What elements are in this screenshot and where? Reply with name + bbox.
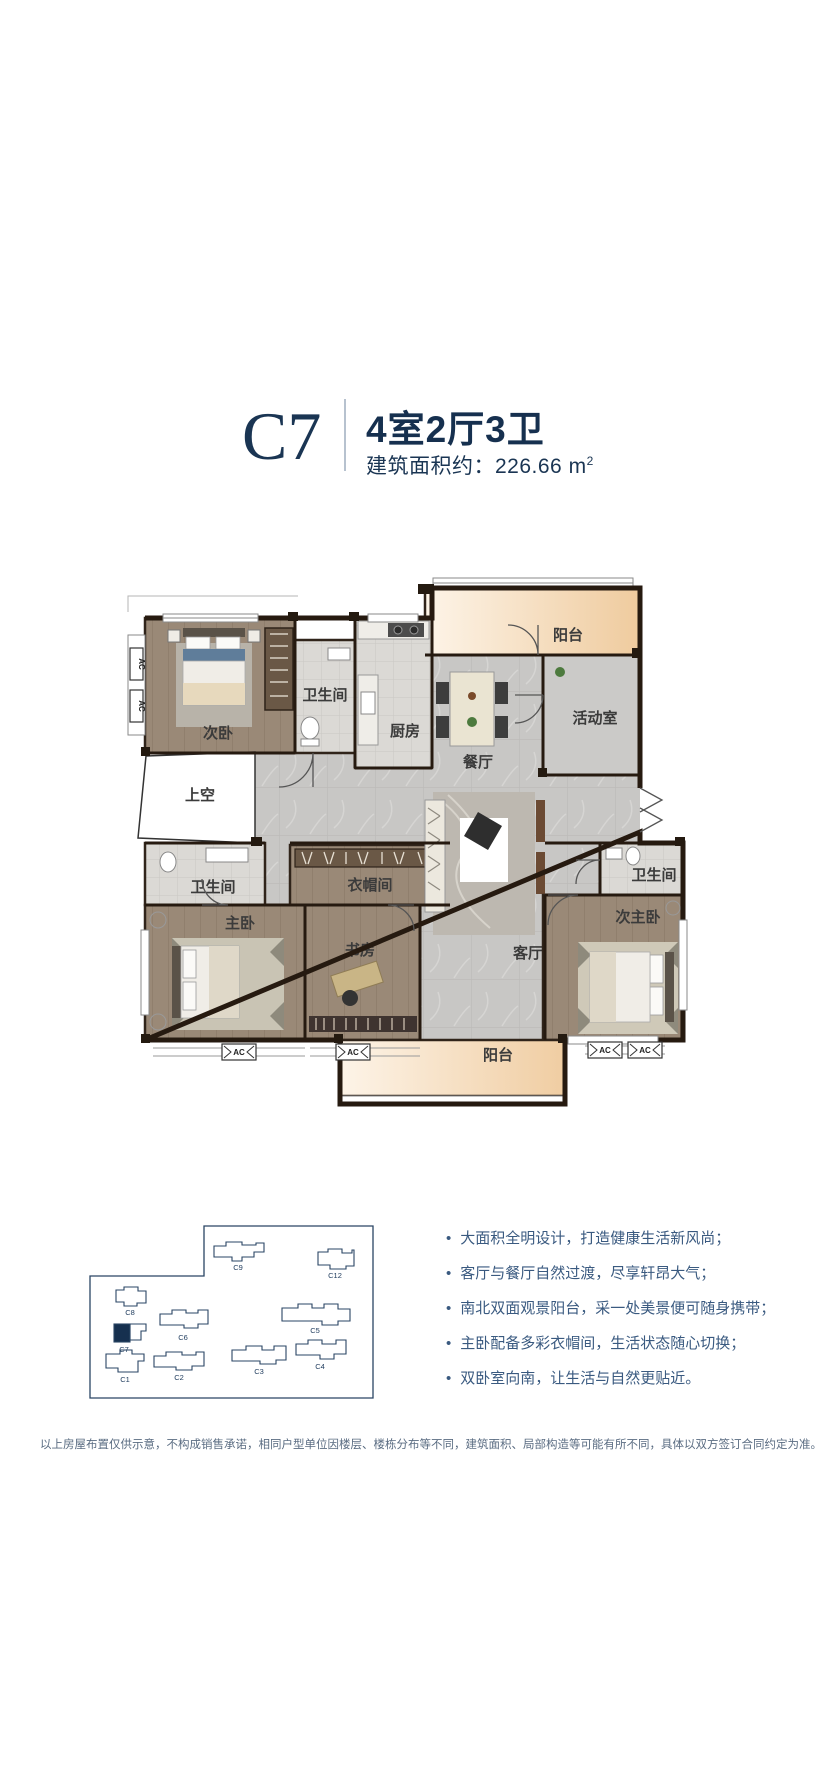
- building-label-C6: C6: [178, 1333, 188, 1342]
- room-label-void: 上空: [185, 786, 215, 804]
- bullet-icon: •: [446, 1333, 451, 1354]
- ac-box-4: AC: [639, 1046, 651, 1055]
- room-label-second-bedroom: 次卧: [203, 724, 233, 742]
- ac-box-1: AC: [233, 1048, 245, 1057]
- room-second-bedroom: 次卧: [145, 618, 295, 753]
- feature-item: •主卧配备多彩衣帽间，生活状态随心切换；: [446, 1333, 786, 1354]
- floorplan: 阳台 活动室 次卧: [88, 500, 708, 1110]
- room-bathroom-north: 卫生间: [295, 640, 355, 753]
- building-label-C2: C2: [174, 1373, 184, 1382]
- room-label-balcony-north: 阳台: [553, 626, 583, 644]
- siteplan-labels: C9 C12 C8 C6 C5 C7 C1 C2 C3 C4: [119, 1263, 342, 1384]
- feature-list: •大面积全明设计，打造健康生活新风尚； •客厅与餐厅自然过渡，尽享轩昂大气； •…: [446, 1228, 786, 1403]
- header-divider: [344, 399, 346, 471]
- building-C3: [232, 1346, 286, 1364]
- area-label: 建筑面积约：: [366, 455, 495, 478]
- layout-title: 4室2厅3卫: [366, 399, 545, 453]
- building-label-C8: C8: [125, 1308, 135, 1317]
- building-label-C1: C1: [120, 1375, 130, 1384]
- feature-item: •大面积全明设计，打造健康生活新风尚；: [446, 1228, 786, 1249]
- siteplan-buildings: [106, 1242, 354, 1372]
- feature-text: 客厅与餐厅自然过渡，尽享轩昂大气；: [460, 1263, 715, 1284]
- room-label-cloakroom: 衣帽间: [347, 876, 392, 894]
- building-C4: [296, 1340, 346, 1359]
- ac-box-3: AC: [599, 1046, 611, 1055]
- room-label-living: 客厅: [512, 944, 543, 962]
- building-C7-highlight: [114, 1324, 130, 1342]
- room-label-dining: 餐厅: [463, 753, 493, 771]
- building-C8: [116, 1287, 146, 1306]
- feature-text: 南北双面观景阳台，采一处美景便可随身携带；: [460, 1298, 775, 1319]
- room-study: 书房: [305, 905, 420, 1040]
- ac-box-west-2: AC: [137, 700, 146, 712]
- area-value: 226.66: [495, 455, 562, 478]
- building-label-C4: C4: [315, 1362, 325, 1371]
- bullet-icon: •: [446, 1298, 451, 1319]
- room-bathroom-east: 卫生间: [600, 843, 683, 895]
- feature-text: 主卧配备多彩衣帽间，生活状态随心切换；: [460, 1333, 745, 1354]
- building-label-C9: C9: [233, 1263, 243, 1272]
- building-C12: [318, 1249, 354, 1269]
- building-label-C7: C7: [119, 1345, 129, 1354]
- building-C2: [154, 1352, 204, 1370]
- building-label-C3: C3: [254, 1367, 264, 1376]
- feature-text: 大面积全明设计，打造健康生活新风尚；: [460, 1228, 730, 1249]
- plan-outline-hint: [128, 596, 298, 612]
- room-label-bathroom-master: 卫生间: [190, 878, 235, 896]
- building-C5: [282, 1304, 350, 1325]
- page: C7 4室2厅3卫 建筑面积约：226.66 m2: [0, 0, 828, 1792]
- bullet-icon: •: [446, 1228, 451, 1249]
- room-label-activity: 活动室: [572, 709, 617, 727]
- area-unit: m: [569, 455, 587, 478]
- ac-box-2: AC: [347, 1048, 359, 1057]
- room-master-bedroom: 主卧: [145, 905, 305, 1040]
- room-balcony-south: 阳台: [340, 1040, 565, 1104]
- west-bay: AC AC: [128, 635, 146, 735]
- disclaimer-text: 以上房屋布置仅供示意，不构成销售承诺，相同户型单位因楼层、楼栋分布等不同，建筑面…: [40, 1436, 788, 1452]
- room-kitchen: 厨房: [355, 618, 432, 768]
- building-C7-outline: [130, 1324, 146, 1340]
- building-C9: [214, 1242, 264, 1261]
- room-bathroom-master: 卫生间: [145, 843, 265, 905]
- bullet-icon: •: [446, 1368, 451, 1389]
- building-label-C5: C5: [310, 1326, 320, 1335]
- room-second-master: 次主卧: [543, 895, 683, 1040]
- feature-item: •双卧室向南，让生活与自然更贴近。: [446, 1368, 786, 1389]
- area-line: 建筑面积约：226.66 m2: [366, 450, 594, 480]
- bullet-icon: •: [446, 1263, 451, 1284]
- room-void: 上空: [138, 752, 255, 843]
- room-label-bathroom-east: 卫生间: [631, 866, 676, 884]
- feature-item: •客厅与餐厅自然过渡，尽享轩昂大气；: [446, 1263, 786, 1284]
- room-label-kitchen: 厨房: [390, 722, 420, 740]
- building-C6: [160, 1310, 208, 1328]
- unit-code: C7: [242, 404, 342, 468]
- room-label-master-bedroom: 主卧: [225, 914, 255, 932]
- feature-item: •南北双面观景阳台，采一处美景便可随身携带；: [446, 1298, 786, 1319]
- area-sup: 2: [587, 454, 594, 468]
- ac-box-west-1: AC: [137, 658, 146, 670]
- room-activity: 活动室: [543, 655, 640, 775]
- room-label-balcony-south: 阳台: [483, 1046, 513, 1064]
- building-label-C12: C12: [328, 1271, 342, 1280]
- feature-text: 双卧室向南，让生活与自然更贴近。: [460, 1368, 700, 1389]
- room-label-second-master: 次主卧: [615, 908, 660, 926]
- siteplan: C9 C12 C8 C6 C5 C7 C1 C2 C3 C4: [86, 1222, 378, 1402]
- room-label-bathroom-north: 卫生间: [302, 686, 347, 704]
